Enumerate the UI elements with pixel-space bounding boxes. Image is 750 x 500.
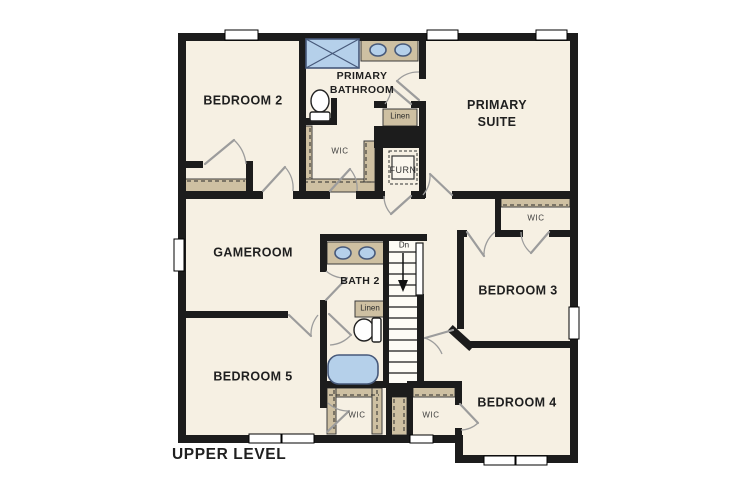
- sink-icon: [370, 44, 386, 56]
- level-title: UPPER LEVEL: [172, 446, 286, 464]
- closet-label-wic-primary: WIC: [331, 147, 348, 158]
- stairs-down-label: Dn: [399, 241, 409, 252]
- closet-rod-wic-bedroom4: [413, 387, 455, 397]
- closet-label-linen-bath2: Linen: [360, 304, 380, 315]
- window: [249, 434, 281, 443]
- window: [410, 435, 433, 443]
- room-label-bedroom-4: BEDROOM 4: [477, 395, 556, 412]
- bathtub-icon: [328, 355, 378, 384]
- window: [536, 30, 567, 40]
- room-label-primary-bathroom: PRIMARY BATHROOM: [321, 69, 403, 97]
- room-label-bath-2: BATH 2: [338, 274, 382, 288]
- sink-icon: [359, 247, 375, 259]
- utility-label-furnace: FURN: [390, 164, 417, 176]
- closet-label-wic-bedroom4: WIC: [422, 411, 439, 422]
- window: [569, 307, 579, 339]
- room-label-bedroom-2: BEDROOM 2: [203, 93, 282, 110]
- closet-label-linen-primary: Linen: [390, 112, 410, 123]
- window: [427, 30, 458, 40]
- window: [282, 434, 314, 443]
- window: [484, 456, 515, 465]
- window: [516, 456, 547, 465]
- room-label-bedroom-5: BEDROOM 5: [213, 369, 292, 386]
- window: [225, 30, 258, 40]
- cased-opening: [391, 397, 407, 435]
- sink-icon: [395, 44, 411, 56]
- room-label-primary-suite: PRIMARY SUITE: [462, 97, 532, 131]
- stair-railing: [416, 243, 423, 295]
- floorplan-canvas: BEDROOM 2 PRIMARY BATHROOM PRIMARY SUITE…: [0, 0, 750, 500]
- window: [174, 239, 184, 271]
- closet-label-wic-bedroom5: WIC: [348, 411, 365, 422]
- toilet-icon: [354, 318, 381, 342]
- room-label-gameroom: GAMEROOM: [213, 245, 293, 262]
- closet-label-wic-bedroom3: WIC: [527, 214, 544, 225]
- closet-rod-wic-primary-right: [364, 141, 375, 182]
- stairs-down: [389, 241, 417, 385]
- shower-icon: [306, 39, 359, 68]
- room-label-bedroom-3: BEDROOM 3: [478, 283, 557, 300]
- sink-icon: [335, 247, 351, 259]
